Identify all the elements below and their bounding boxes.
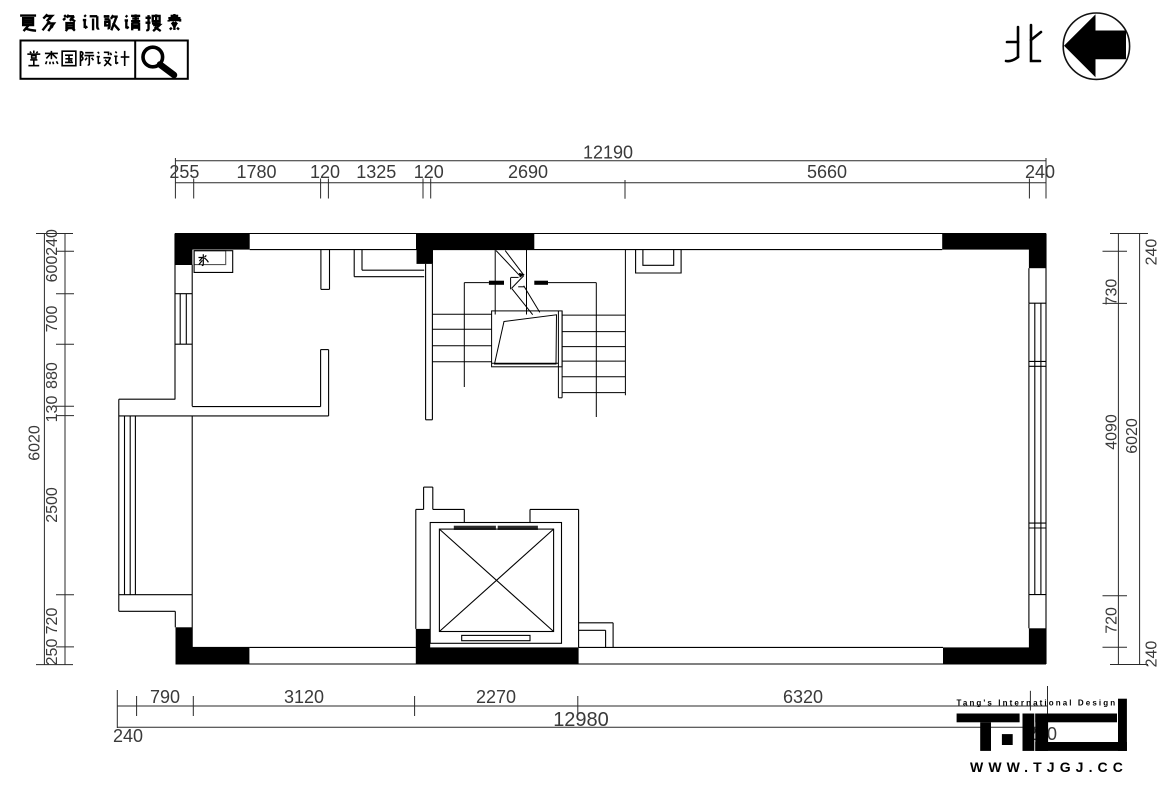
svg-text:6320: 6320	[783, 687, 823, 707]
svg-text:720: 720	[44, 608, 61, 635]
svg-text:6020: 6020	[1124, 418, 1141, 454]
svg-text:240: 240	[1025, 162, 1055, 182]
svg-text:12980: 12980	[553, 709, 609, 731]
svg-text:240: 240	[113, 726, 143, 746]
svg-text:720: 720	[1104, 607, 1121, 634]
svg-text:120: 120	[414, 162, 444, 182]
svg-text:730: 730	[1104, 279, 1121, 306]
svg-text:255: 255	[169, 162, 199, 182]
svg-text:130: 130	[44, 396, 61, 423]
svg-text:3120: 3120	[284, 687, 324, 707]
svg-text:1780: 1780	[236, 162, 276, 182]
svg-text:250: 250	[44, 639, 61, 666]
svg-text:Tang's International Design: Tang's International Design	[957, 699, 1118, 708]
svg-text:1325: 1325	[356, 162, 396, 182]
svg-text:WWW.TJGJ.CC: WWW.TJGJ.CC	[970, 759, 1128, 775]
svg-text:120: 120	[310, 162, 340, 182]
svg-text:12190: 12190	[583, 143, 633, 163]
svg-text:790: 790	[150, 687, 180, 707]
svg-text:6020: 6020	[27, 425, 44, 461]
svg-text:2690: 2690	[508, 162, 548, 182]
svg-text:240: 240	[1144, 641, 1158, 668]
svg-text:700: 700	[44, 306, 61, 333]
svg-text:600: 600	[44, 256, 61, 283]
svg-text:880: 880	[44, 362, 61, 389]
svg-text:2500: 2500	[44, 487, 61, 523]
svg-text:240: 240	[44, 229, 61, 256]
svg-text:5660: 5660	[807, 162, 847, 182]
svg-text:2270: 2270	[476, 687, 516, 707]
svg-text:240: 240	[1144, 239, 1158, 266]
svg-text:4090: 4090	[1104, 414, 1121, 450]
